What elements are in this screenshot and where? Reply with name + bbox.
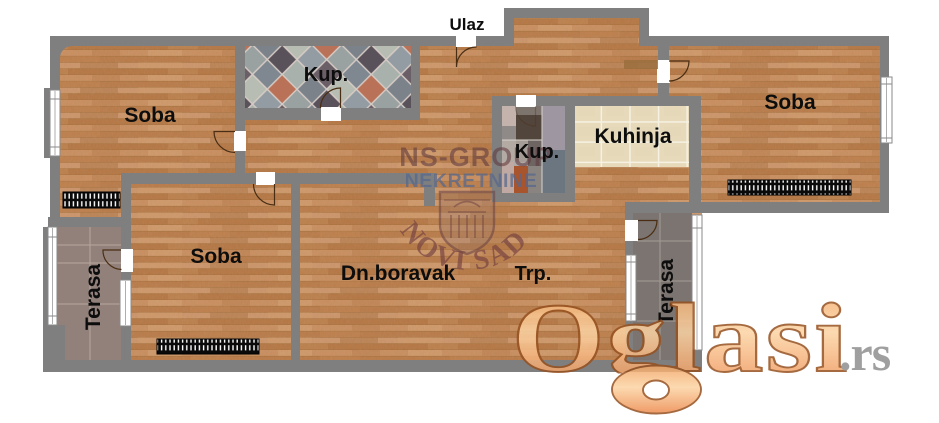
svg-text:Kup.: Kup. bbox=[515, 141, 559, 163]
svg-text:Soba: Soba bbox=[190, 245, 242, 268]
svg-text:Ulaz: Ulaz bbox=[450, 15, 485, 34]
svg-text:Trp.: Trp. bbox=[515, 263, 552, 285]
svg-text:Dn.boravak: Dn.boravak bbox=[341, 262, 456, 285]
svg-text:Terasa: Terasa bbox=[82, 264, 105, 330]
svg-text:NEKRETNINE: NEKRETNINE bbox=[405, 170, 538, 192]
svg-text:Kup.: Kup. bbox=[304, 64, 348, 86]
svg-text:Kuhinja: Kuhinja bbox=[595, 125, 672, 148]
svg-text:Soba: Soba bbox=[124, 104, 176, 127]
svg-text:Soba: Soba bbox=[764, 91, 816, 114]
svg-text:.rs: .rs bbox=[839, 325, 891, 381]
